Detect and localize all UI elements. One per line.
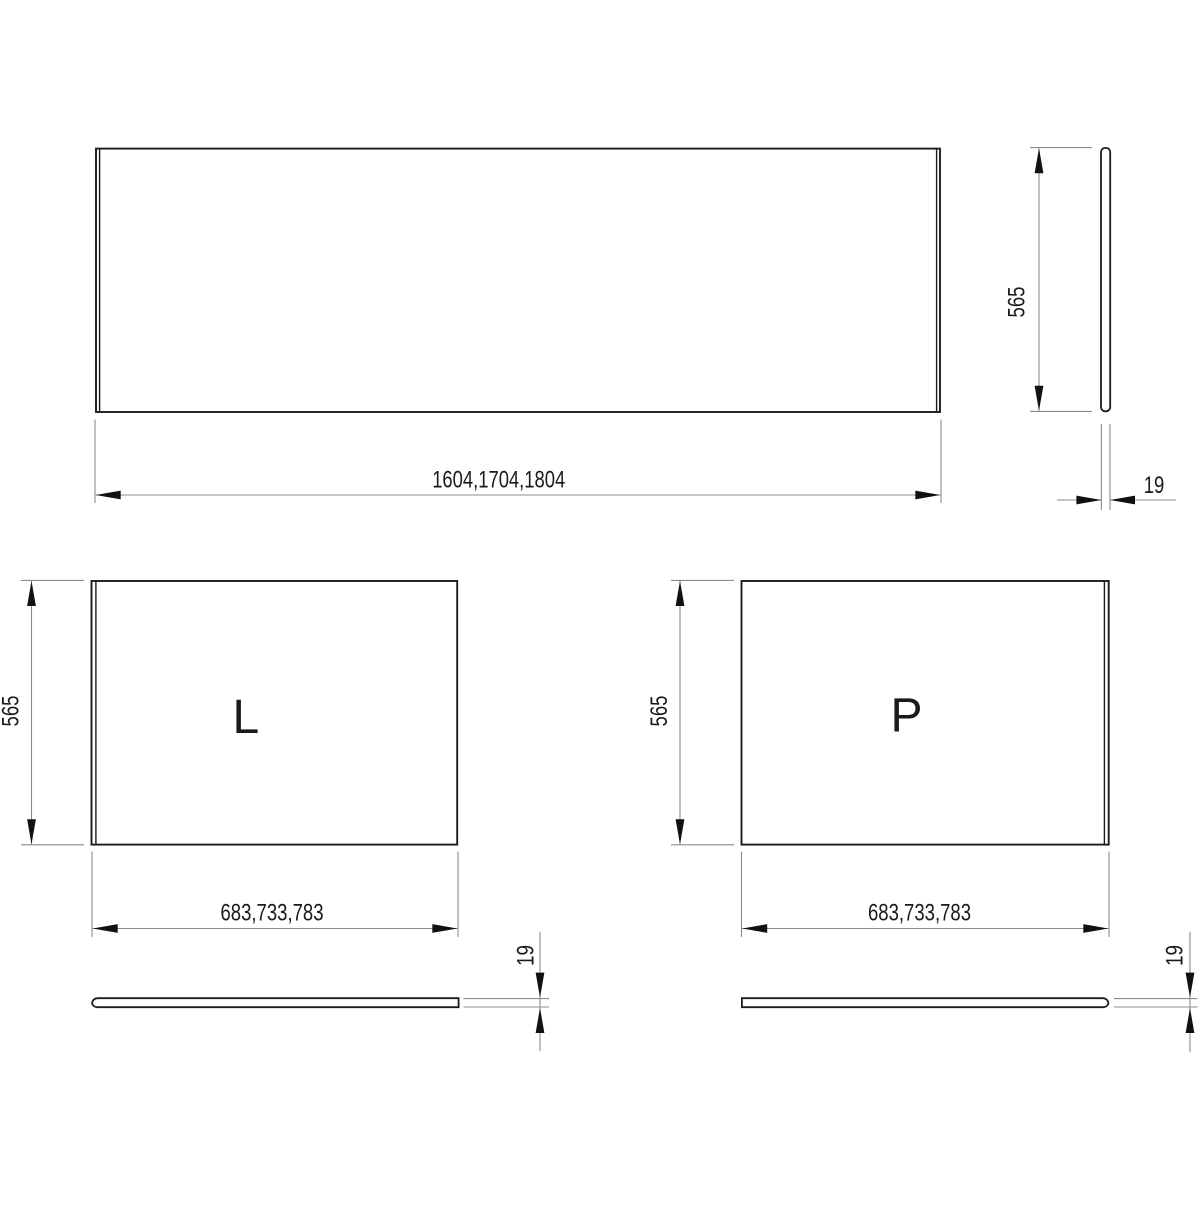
svg-text:565: 565 <box>646 696 673 727</box>
svg-text:683,733,783: 683,733,783 <box>221 900 324 927</box>
svg-text:L: L <box>233 691 260 744</box>
svg-text:19: 19 <box>513 945 540 966</box>
svg-text:P: P <box>891 690 923 743</box>
svg-text:19: 19 <box>1144 472 1165 499</box>
svg-text:1604,1704,1804: 1604,1704,1804 <box>432 467 565 494</box>
svg-text:683,733,783: 683,733,783 <box>868 900 971 927</box>
svg-text:19: 19 <box>1162 945 1189 966</box>
svg-text:565: 565 <box>0 696 25 727</box>
svg-text:565: 565 <box>1004 287 1031 318</box>
